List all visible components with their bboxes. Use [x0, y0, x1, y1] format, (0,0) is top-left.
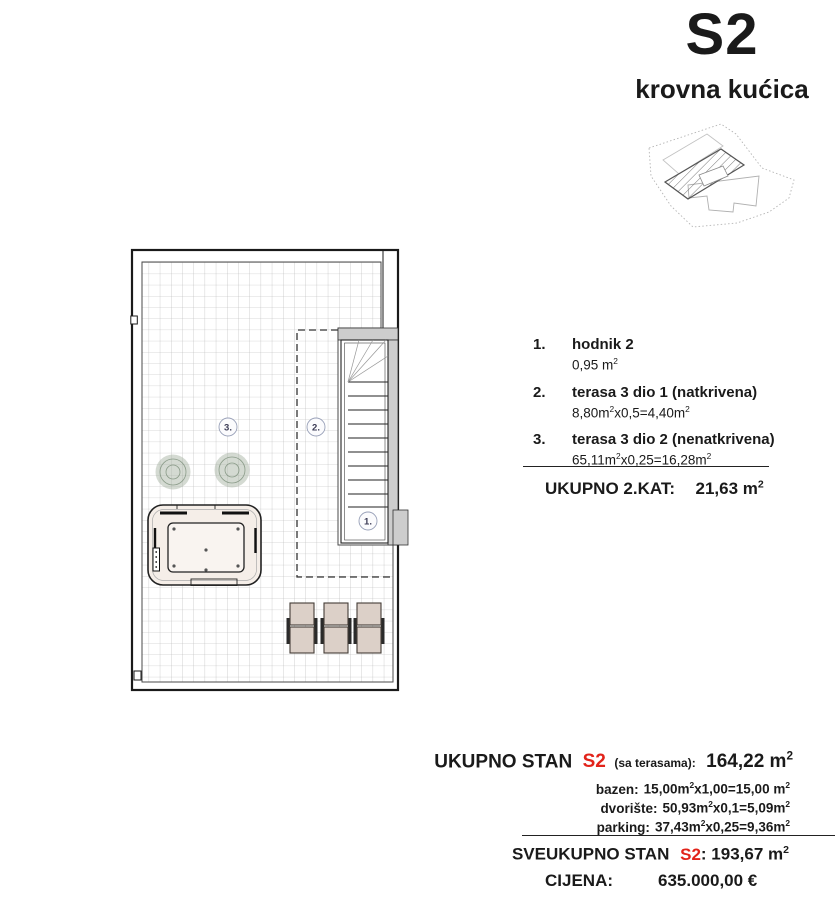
- legend-item-number: 3.: [533, 431, 572, 468]
- apartment-total-label: UKUPNO STAN: [434, 751, 572, 772]
- room-legend: 1. hodnik 2 0,95 m2 2. terasa 3 dio 1 (n…: [533, 336, 833, 479]
- apartment-subtitle: krovna kućica: [608, 74, 835, 105]
- legend-item: 3. terasa 3 dio 2 (nenatkrivena) 65,11m2…: [533, 431, 833, 468]
- legend-item-name: terasa 3 dio 1 (natkrivena): [572, 384, 757, 401]
- sun-lounger: [321, 603, 352, 653]
- svg-text:1.: 1.: [364, 517, 372, 528]
- floor-total-value: 21,63 m2: [695, 479, 763, 498]
- breakdown-row: bazen:15,00m2x1,00=15,00 m2: [0, 778, 790, 797]
- room-label-1: 1.: [359, 512, 377, 530]
- sun-lounger: [354, 603, 385, 653]
- sun-lounger: [287, 603, 318, 653]
- plant-icon: [215, 453, 250, 488]
- plant-icon: [156, 455, 191, 490]
- summary-divider: [522, 835, 835, 836]
- breakdown-row: parking:37,43m2x0,25=9,36m2: [0, 816, 790, 835]
- legend-item: 2. terasa 3 dio 1 (natkrivena) 8,80m2x0,…: [533, 384, 833, 421]
- legend-item-number: 2.: [533, 384, 572, 421]
- hot-tub: [148, 505, 261, 586]
- apartment-total-value: 164,22 m2: [706, 751, 793, 772]
- grand-total: SVEUKUPNO STAN S2: 193,67 m2: [0, 844, 789, 865]
- site-location-map: [641, 118, 821, 244]
- grand-total-label: SVEUKUPNO STAN: [512, 845, 669, 864]
- legend-item-area: 0,95 m2: [572, 356, 634, 373]
- floor-plan-drawing: 3. 2. 1.: [115, 240, 435, 705]
- breakdown-row: dvorište:50,93m2x0,1=5,09m2: [0, 797, 790, 816]
- room-label-3: 3.: [219, 418, 237, 436]
- price-value: 635.000,00 €: [658, 871, 757, 891]
- legend-item-number: 1.: [533, 336, 572, 373]
- legend-item-name: hodnik 2: [572, 336, 634, 353]
- floor-total: UKUPNO 2.KAT: 21,63 m2: [523, 466, 769, 499]
- apartment-total-note: (sa terasama):: [614, 756, 695, 770]
- legend-item-area: 8,80m2x0,5=4,40m2: [572, 404, 757, 421]
- legend-item: 1. hodnik 2 0,95 m2: [533, 336, 833, 373]
- apartment-code: S2: [608, 4, 835, 66]
- area-breakdown: bazen:15,00m2x1,00=15,00 m2 dvorište:50,…: [0, 778, 790, 835]
- staircase: [338, 328, 408, 545]
- apartment-total-code: S2: [583, 751, 606, 772]
- room-label-2: 2.: [307, 418, 325, 436]
- title-block: S2 krovna kućica: [608, 4, 835, 105]
- svg-text:3.: 3.: [224, 423, 232, 434]
- wall-notch-left: [131, 316, 138, 324]
- price-label: CIJENA:: [545, 871, 613, 891]
- grand-total-value: : 193,67 m: [701, 845, 783, 864]
- apartment-total: UKUPNO STAN S2 (sa terasama): 164,22 m2: [0, 750, 793, 773]
- legend-item-name: terasa 3 dio 2 (nenatkrivena): [572, 431, 775, 448]
- svg-text:2.: 2.: [312, 423, 320, 434]
- grand-total-code: S2: [680, 845, 701, 864]
- floor-plan-sheet: S2 krovna kućica: [0, 0, 835, 898]
- wall-notch-bottom-left: [134, 671, 141, 680]
- floor-total-label: UKUPNO 2.KAT:: [545, 479, 675, 498]
